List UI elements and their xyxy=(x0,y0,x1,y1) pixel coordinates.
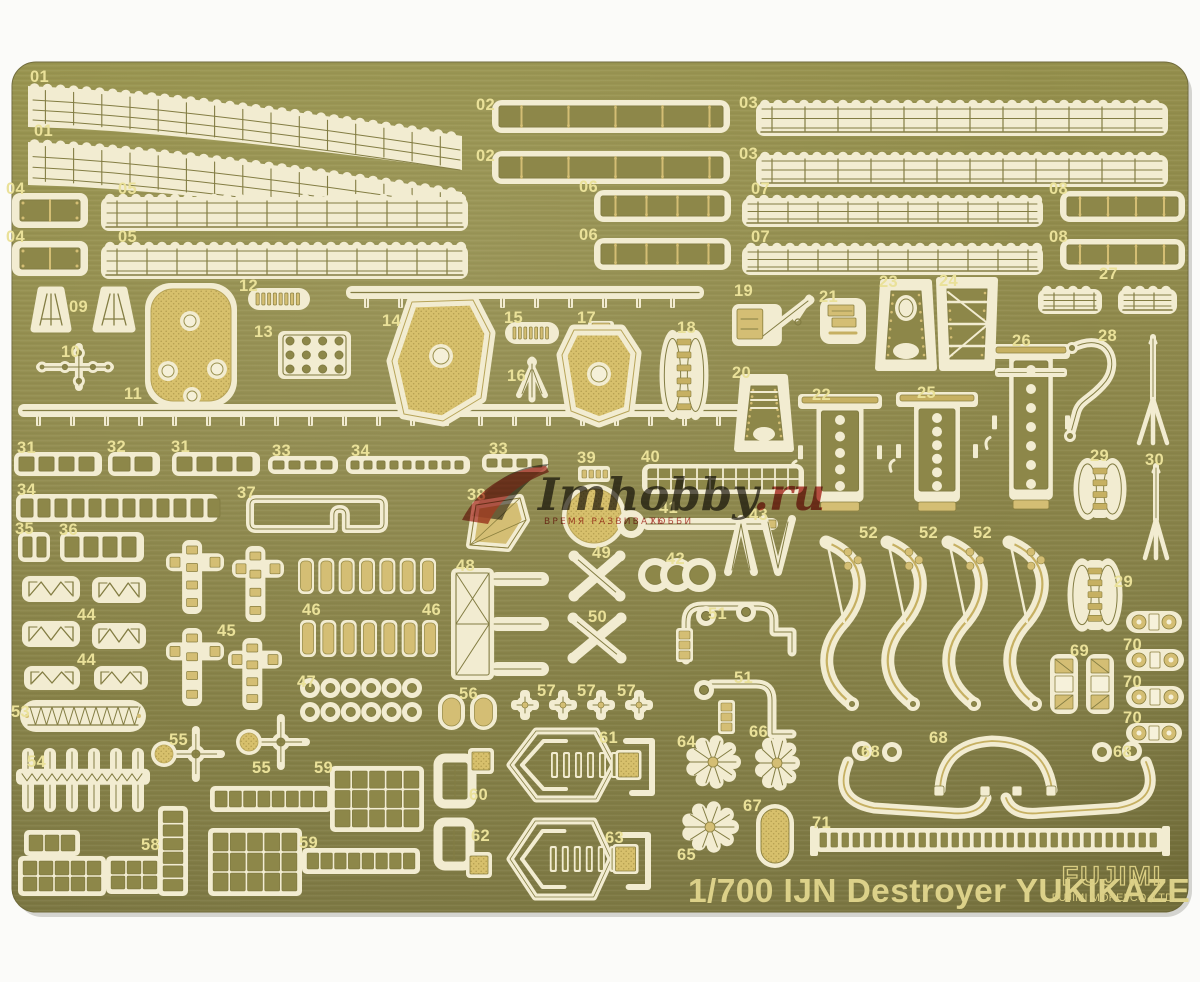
part-number-label: 36 xyxy=(59,521,78,539)
part-number-label: 61 xyxy=(599,729,618,747)
part-number-label: 54 xyxy=(27,753,46,771)
pe-part-zigzag xyxy=(22,621,80,647)
part-number-label: 08 xyxy=(1049,228,1068,246)
part-number-label: 04 xyxy=(6,180,25,198)
part-number-label: 23 xyxy=(879,273,898,291)
part-number-label: 09 xyxy=(69,298,88,316)
part-number-label: 57 xyxy=(537,682,556,700)
pe-part-zigzag xyxy=(94,666,148,690)
part-number-label: 55 xyxy=(252,759,271,777)
pe-part-rail xyxy=(1038,286,1102,314)
part-number-label: 31 xyxy=(171,438,190,456)
part-number-label: 51 xyxy=(708,605,727,623)
part-number-label: 33 xyxy=(272,442,291,460)
part-number-label: 49 xyxy=(592,544,611,562)
pe-part-grid xyxy=(158,806,188,896)
part-number-label: 57 xyxy=(617,682,636,700)
part-number-label: 70 xyxy=(1123,636,1142,654)
part-number-label: 03 xyxy=(739,94,758,112)
part-number-label: 02 xyxy=(476,96,495,114)
part-number-label: 50 xyxy=(588,608,607,626)
part-number-label: 69 xyxy=(1070,642,1089,660)
pe-part-panel xyxy=(1086,654,1114,714)
pe-part-grid xyxy=(106,856,162,894)
part-number-label: 65 xyxy=(677,846,696,864)
part-number-label: 26 xyxy=(1012,332,1031,350)
part-number-label: 21 xyxy=(819,288,838,306)
part-number-label: 53 xyxy=(11,703,30,721)
part-number-label: 31 xyxy=(17,439,36,457)
part-number-label: 18 xyxy=(677,319,696,337)
part-number-label: 34 xyxy=(351,442,370,460)
pe-part-plate xyxy=(12,241,88,276)
part-number-label: 11 xyxy=(124,385,142,403)
part-number-label: 68 xyxy=(861,743,880,761)
part-number-label: 05 xyxy=(118,228,137,246)
part-number-label: 56 xyxy=(459,685,478,703)
part-number-label: 57 xyxy=(577,682,596,700)
part-number-label: 52 xyxy=(919,524,938,542)
part-number-label: 46 xyxy=(302,601,321,619)
pe-part-grid xyxy=(18,856,106,896)
part-number-label: 40 xyxy=(641,448,660,466)
pe-part-strip xyxy=(594,238,731,270)
part-number-label: 55 xyxy=(169,731,188,749)
part-number-label: 70 xyxy=(1123,709,1142,727)
pe-part-plate xyxy=(12,193,88,228)
part-number-label: 01 xyxy=(34,122,53,140)
part-number-label: 52 xyxy=(859,524,878,542)
watermark-tld: .ru xyxy=(753,468,825,521)
pe-part-butterfly xyxy=(1073,458,1126,520)
part-number-label: 15 xyxy=(504,309,523,327)
pe-part-zigzag xyxy=(92,623,146,649)
part-number-label: 10 xyxy=(61,343,80,361)
part-number-label: 64 xyxy=(677,733,696,751)
part-number-label: 71 xyxy=(812,814,831,832)
pe-part-grid xyxy=(208,828,302,896)
pe-part-taper xyxy=(737,377,791,449)
part-number-label: 51 xyxy=(734,669,753,687)
pe-part-meshPoly xyxy=(392,300,490,421)
pe-part-capsRow xyxy=(298,558,436,594)
pe-part-zigzag xyxy=(24,666,80,690)
pe-part-ladder71 xyxy=(810,826,1170,856)
pe-part-hatch xyxy=(16,494,220,522)
part-number-label: 17 xyxy=(577,309,596,327)
pe-part-grid xyxy=(24,830,80,856)
pe-part-meshRect xyxy=(145,283,237,407)
part-number-label: 68 xyxy=(1113,743,1132,761)
pe-part-grid xyxy=(302,848,420,874)
pe-part-eframe xyxy=(451,568,549,680)
pe-part-aframe xyxy=(34,290,68,329)
pe-part-rail xyxy=(756,152,1168,187)
part-number-label: 28 xyxy=(1098,327,1117,345)
pe-part-cap70 xyxy=(1126,611,1182,633)
pe-part-rail xyxy=(101,194,468,231)
part-number-label: 05 xyxy=(118,180,137,198)
part-number-label: 12 xyxy=(239,277,258,295)
part-number-label: 03 xyxy=(739,145,758,163)
pe-part-butterfly xyxy=(1067,558,1122,631)
pe-part-strip xyxy=(492,100,730,133)
pe-part-strip xyxy=(1060,191,1185,222)
part-number-label: 19 xyxy=(734,282,753,300)
scene: 0101020203030404050506060707080809101112… xyxy=(0,0,1200,982)
part-number-label: 46 xyxy=(422,601,441,619)
part-number-label: 42 xyxy=(666,550,685,568)
pe-part-rail xyxy=(101,242,468,279)
brand-logo: FUJIMI xyxy=(1062,861,1163,891)
part-number-label: 20 xyxy=(732,364,751,382)
part-number-label: 34 xyxy=(17,481,36,499)
part-number-label: 37 xyxy=(237,484,256,502)
part-number-label: 35 xyxy=(15,520,34,538)
part-number-label: 04 xyxy=(6,228,25,246)
part-number-label: 22 xyxy=(812,386,831,404)
part-number-label: 33 xyxy=(489,440,508,458)
part-number-label: 07 xyxy=(751,228,770,246)
pe-part-rail xyxy=(742,243,1043,275)
watermark-tagline-right: ХОББИ xyxy=(650,517,693,527)
pe-part-grid xyxy=(210,786,332,812)
part-number-label: 66 xyxy=(749,723,768,741)
part-number-label: 62 xyxy=(471,827,490,845)
part-number-label: 13 xyxy=(254,323,273,341)
part-number-label: 39 xyxy=(577,449,596,467)
part-number-label: 06 xyxy=(579,178,598,196)
part-number-label: 63 xyxy=(605,829,624,847)
part-number-label: 07 xyxy=(751,180,770,198)
part-number-label: 60 xyxy=(469,786,488,804)
watermark-name: Imhobby xyxy=(536,468,761,521)
pe-part-meshPoly xyxy=(562,321,636,422)
brand-subtitle: FUJIMI MOKEI CO.,LTD. xyxy=(1052,892,1177,904)
watermark-text: Imhobby.ru xyxy=(536,468,825,521)
part-number-label: 44 xyxy=(77,606,96,624)
part-number-label: 06 xyxy=(579,226,598,244)
part-number-label: 24 xyxy=(939,272,958,290)
part-number-label: 44 xyxy=(77,651,96,669)
pe-part-grid xyxy=(330,766,424,832)
part-number-label: 29 xyxy=(1090,447,1109,465)
pe-part-butterfly xyxy=(660,330,709,420)
part-number-label: 47 xyxy=(297,673,316,691)
watermark-tagline-left: ВРЕМЯ РАЗВИВАТЬ xyxy=(544,517,665,527)
part-number-label: 45 xyxy=(217,622,236,640)
pe-part-strip xyxy=(594,190,731,222)
part-number-label: 02 xyxy=(476,147,495,165)
pe-part-panel xyxy=(1050,654,1078,714)
part-number-label: 67 xyxy=(743,797,762,815)
part-number-label: 25 xyxy=(917,384,936,402)
part-number-label: 58 xyxy=(141,836,160,854)
pe-part-strip xyxy=(492,151,730,184)
part-number-label: 68 xyxy=(929,729,948,747)
part-number-label: 59 xyxy=(299,834,318,852)
photo-etch-sheet-photo: 0101020203030404050506060707080809101112… xyxy=(0,0,1200,982)
part-number-label: 48 xyxy=(456,557,475,575)
part-number-label: 52 xyxy=(973,524,992,542)
pe-part-strip xyxy=(1060,239,1185,270)
pe-part-zigzag xyxy=(22,576,80,602)
part-number-label: 30 xyxy=(1145,451,1164,469)
pe-part-taper xyxy=(878,282,934,368)
pe-part-rail xyxy=(756,100,1168,136)
pe-part-aframe xyxy=(96,290,132,329)
pe-part-truss xyxy=(20,700,146,732)
part-number-label: 14 xyxy=(382,312,401,330)
part-number-label: 59 xyxy=(314,759,333,777)
pe-part-rail xyxy=(742,195,1043,227)
pe-part-rail xyxy=(1118,286,1177,314)
pe-part-taper xyxy=(939,280,995,368)
part-number-label: 32 xyxy=(107,438,126,456)
part-number-label: 29 xyxy=(1114,573,1133,591)
pe-part-zigzag xyxy=(92,577,146,603)
part-number-label: 01 xyxy=(30,68,49,86)
part-number-label: 16 xyxy=(507,367,526,385)
part-number-label: 27 xyxy=(1099,265,1118,283)
part-number-label: 08 xyxy=(1049,180,1068,198)
part-number-label: 70 xyxy=(1123,673,1142,691)
pe-part-holes13 xyxy=(278,331,351,379)
pe-part-capsRow xyxy=(300,620,438,657)
